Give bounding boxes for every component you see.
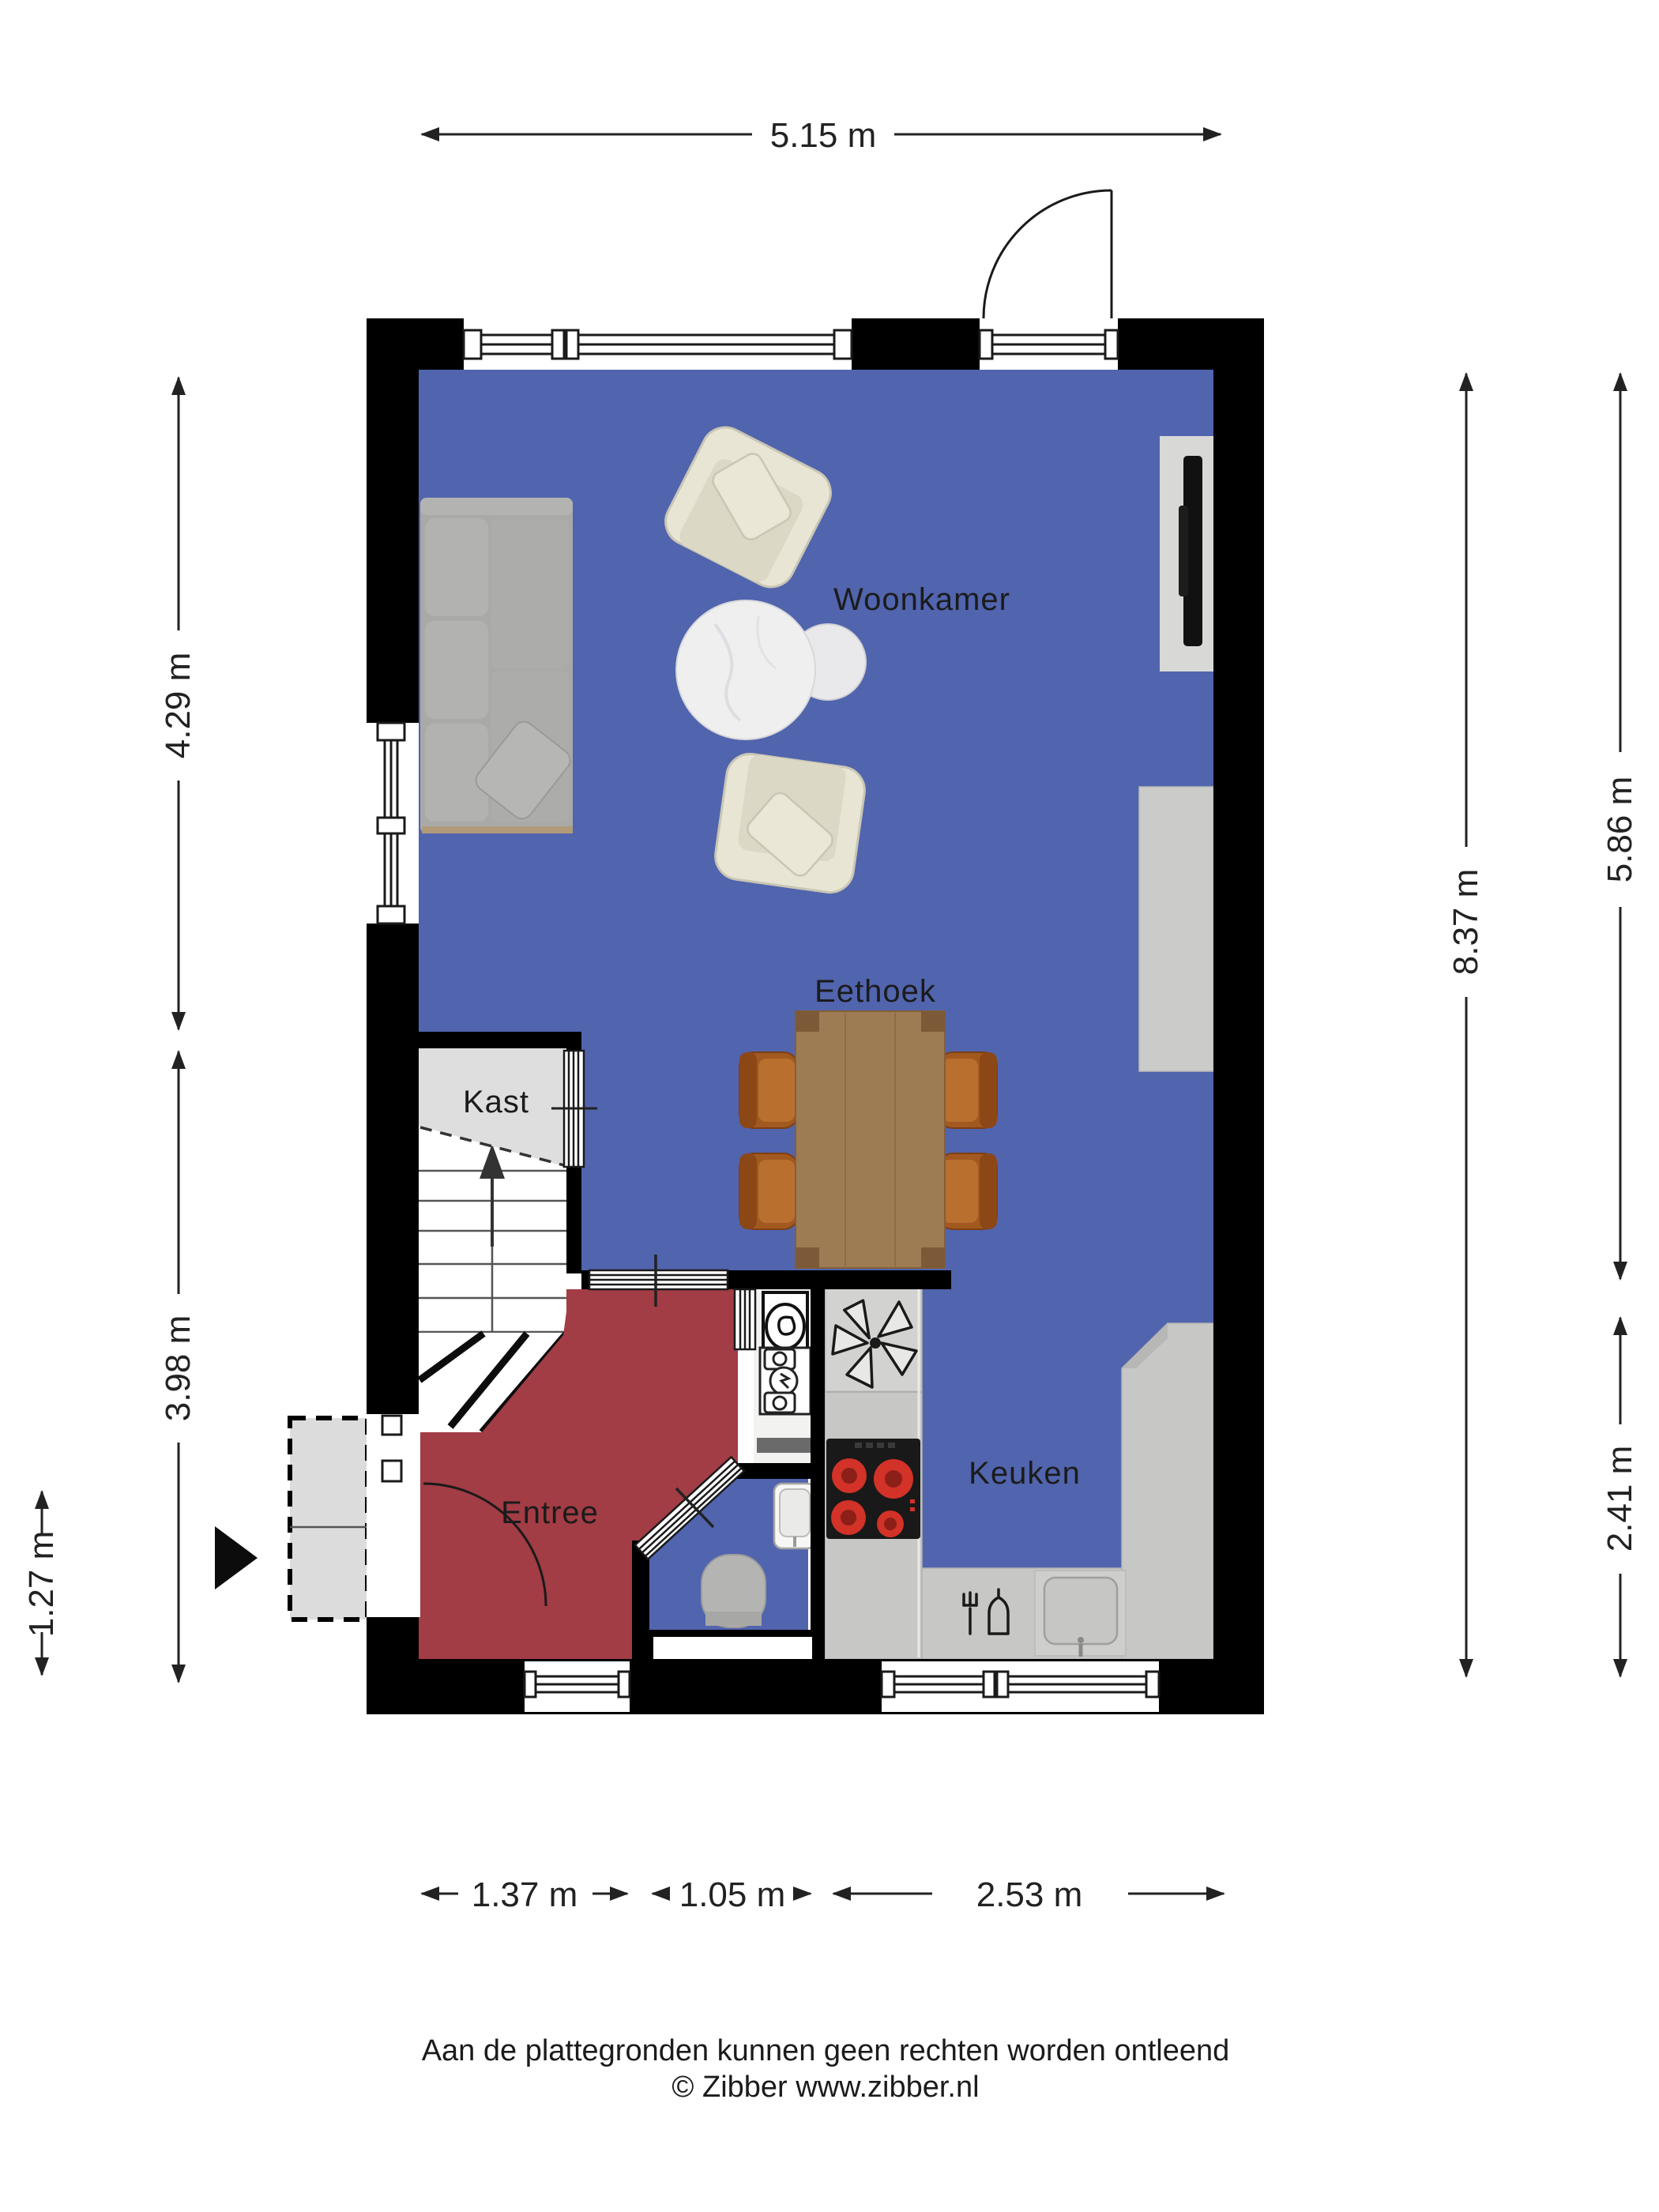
label-keuken: Keuken <box>969 1456 1081 1491</box>
label-eethoek: Eethoek <box>814 974 936 1009</box>
dim-bottom-right-label: 2.53 m <box>976 1875 1083 1914</box>
dining-table <box>796 1011 945 1268</box>
dimension-bottom: 1.37 m 1.05 m 2.53 m <box>422 1875 1224 1914</box>
dim-bottom-left-label: 1.37 m <box>472 1875 578 1914</box>
floorplan-svg: 5.15 m 4.29 m 3.98 m 1.27 m 8.37 m 5.86 … <box>0 0 1659 2212</box>
dim-right-lower-label: 2.41 m <box>1601 1446 1639 1552</box>
sideboard <box>1139 787 1213 1071</box>
sofa <box>420 498 574 833</box>
dim-left-inner-label: 1.27 m <box>22 1531 61 1638</box>
boiler-unit <box>760 1348 811 1414</box>
left-window <box>363 723 419 924</box>
dim-right-outer-label: 8.37 m <box>1446 869 1485 976</box>
dimension-left-lower: 3.98 m <box>159 1051 197 1682</box>
toilet <box>702 1555 766 1627</box>
dimension-right-upper: 5.86 m <box>1601 374 1639 1279</box>
dim-left-lower-label: 3.98 m <box>159 1315 197 1422</box>
niche-counter-strip <box>757 1438 811 1453</box>
dim-left-upper-label: 4.29 m <box>159 653 197 759</box>
footer-copyright: © Zibber www.zibber.nl <box>671 2071 979 2104</box>
dim-right-upper-label: 5.86 m <box>1601 777 1639 883</box>
dim-top-label: 5.15 m <box>770 116 877 155</box>
top-door <box>980 190 1118 370</box>
bottom-window-entree <box>525 1661 630 1712</box>
top-window <box>464 318 852 370</box>
dimension-left-inner: 1.27 m <box>22 1492 61 1675</box>
label-woonkamer: Woonkamer <box>833 582 1010 617</box>
entrance-arrow-icon <box>215 1526 258 1589</box>
kitchen-sink <box>1035 1571 1126 1657</box>
dimension-right-outer: 8.37 m <box>1446 374 1485 1676</box>
tv-unit <box>1160 436 1213 671</box>
footer-disclaimer: Aan de plattegronden kunnen geen rechten… <box>422 2034 1230 2067</box>
dimension-right-lower: 2.41 m <box>1601 1318 1639 1676</box>
bottom-window-keuken <box>882 1661 1159 1712</box>
niche-door-hatch <box>735 1289 755 1349</box>
label-kast: Kast <box>463 1085 529 1119</box>
toilet-sink <box>774 1484 815 1548</box>
dimension-left-upper: 4.29 m <box>159 378 197 1029</box>
floorplan-page: 5.15 m 4.29 m 3.98 m 1.27 m 8.37 m 5.86 … <box>0 0 1659 2212</box>
dim-bottom-middle-label: 1.05 m <box>679 1875 786 1914</box>
stove <box>826 1439 920 1539</box>
dimension-top: 5.15 m <box>422 116 1221 155</box>
label-entree: Entree <box>501 1495 599 1530</box>
armchair-bottom <box>713 751 868 896</box>
porch-outline <box>290 1418 367 1619</box>
